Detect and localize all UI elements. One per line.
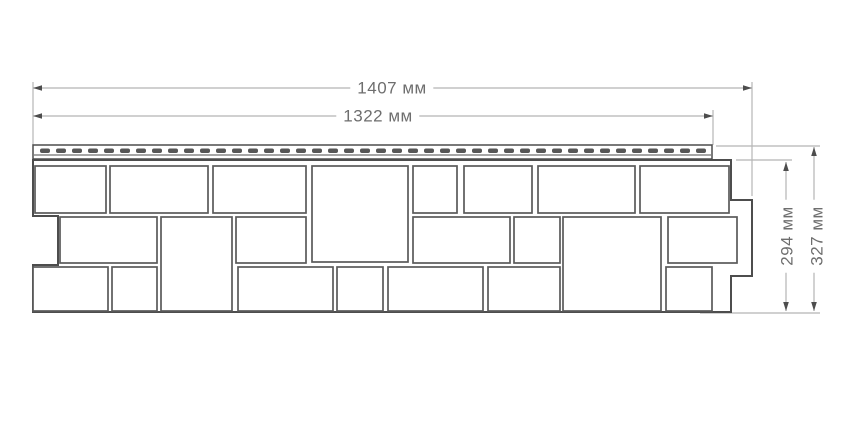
dim-label-useful-width: 1322 мм (336, 106, 419, 127)
panel-technical-drawing (0, 0, 850, 425)
dim-label-useful-height: 294 мм (777, 199, 798, 272)
dim-label-total-height: 327 мм (807, 199, 828, 272)
dim-label-total-width: 1407 мм (350, 78, 433, 99)
drawing-canvas: 1407 мм 1322 мм 294 мм 327 мм (0, 0, 850, 425)
